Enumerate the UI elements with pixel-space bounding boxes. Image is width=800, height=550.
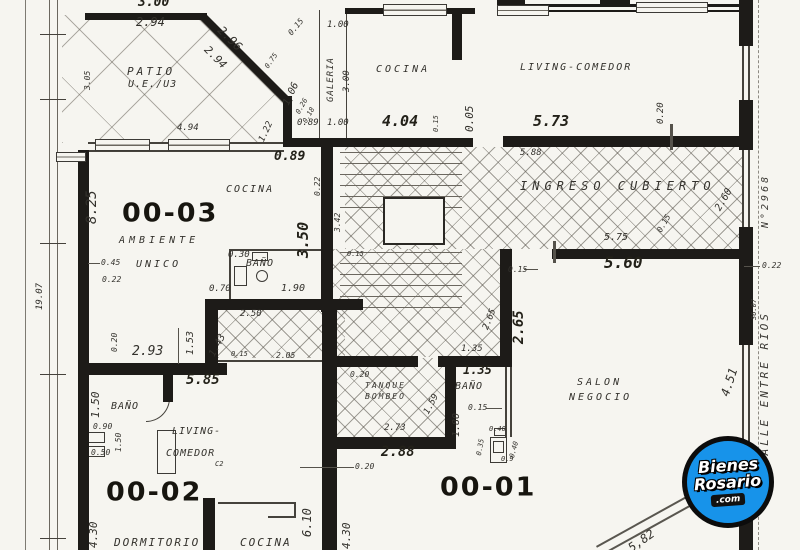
stair-tread bbox=[340, 163, 462, 164]
stair-tread bbox=[340, 263, 462, 264]
stair-tread bbox=[340, 296, 462, 297]
dimension-label: 0.15 bbox=[287, 17, 306, 37]
dimension-label: 5.73 bbox=[533, 114, 569, 129]
wall-segment bbox=[503, 136, 745, 147]
dimension-label: 3.50 bbox=[296, 222, 311, 258]
survey-tick bbox=[40, 243, 66, 244]
dimension-label: 0.30 bbox=[228, 251, 250, 260]
sink-fixture bbox=[88, 432, 105, 443]
window-line bbox=[748, 150, 750, 227]
dim-leader bbox=[744, 266, 760, 267]
boundary-line bbox=[25, 0, 26, 550]
dimension-label: 6.10 bbox=[301, 508, 313, 537]
hall-edge-line bbox=[218, 360, 330, 362]
unit-label-00-02: 00-02 bbox=[106, 478, 202, 507]
survey-tick bbox=[40, 34, 66, 35]
window-symbol bbox=[497, 5, 549, 16]
dimension-label: 1.90 bbox=[281, 284, 305, 294]
unit-label-00-03: 00-03 bbox=[122, 199, 218, 228]
property-line bbox=[57, 0, 58, 550]
dimension-label: 0.20 bbox=[355, 463, 374, 471]
dimension-label: 1.00 bbox=[327, 119, 349, 128]
room-label-patio: PATIO bbox=[127, 66, 175, 77]
dimension-label: 19.07 bbox=[36, 283, 45, 310]
scan-artifact bbox=[600, 0, 630, 6]
window-symbol bbox=[95, 139, 150, 151]
dim-tick bbox=[670, 124, 673, 150]
window-symbol bbox=[383, 4, 447, 16]
dimension-label: 2.73 bbox=[384, 424, 406, 433]
dimension-label: 0.20 bbox=[350, 371, 369, 379]
stair-tread bbox=[340, 274, 462, 275]
stair-tread bbox=[340, 174, 462, 175]
window-symbol bbox=[168, 139, 230, 151]
closet-label: C2 bbox=[215, 461, 223, 468]
room-label-galeria: GALERIA bbox=[327, 57, 336, 102]
room-label-negocio: NEGOCIO bbox=[569, 393, 632, 403]
room-label-banio-u3: BAÑO bbox=[246, 259, 274, 269]
wall-segment bbox=[552, 249, 743, 259]
wall-segment bbox=[739, 0, 753, 46]
dimension-label: 1.35 bbox=[463, 364, 492, 376]
dimension-label: 2.93 bbox=[132, 345, 163, 358]
dimension-label: 0.40 bbox=[489, 426, 506, 433]
room-label-dormitorio: DORMITORIO bbox=[114, 537, 200, 548]
room-label-cocina-u3: COCINA bbox=[226, 185, 274, 195]
unit-label-00-01: 00-01 bbox=[440, 473, 536, 502]
property-line bbox=[49, 0, 50, 550]
dimension-label: 5.88 bbox=[520, 149, 542, 158]
dimension-label: 4.04 bbox=[382, 114, 418, 129]
dimension-label: 0.90 bbox=[93, 423, 112, 431]
wall-segment bbox=[203, 498, 215, 550]
wall-segment bbox=[205, 299, 363, 310]
dimension-label: 0.45 bbox=[101, 259, 120, 267]
dimension-label: 0.50 bbox=[91, 449, 110, 457]
room-label-banio-u1: BAÑO bbox=[455, 382, 483, 392]
dimension-label: 0.20 bbox=[657, 102, 666, 124]
street-name-label: CALLE ENTRE RIOS bbox=[758, 280, 771, 465]
window-line bbox=[742, 46, 744, 104]
dimension-label: 0.20 bbox=[111, 333, 119, 352]
dim-leader bbox=[486, 408, 502, 409]
room-label-cocina-top: COCINA bbox=[376, 65, 430, 75]
dimension-label: 4.30 bbox=[88, 522, 99, 549]
wall-segment bbox=[337, 356, 418, 367]
logo-line2: Rosario bbox=[694, 472, 762, 493]
room-label-bombeo: BOMBEO bbox=[365, 393, 406, 401]
dimension-label: 5,82 bbox=[626, 527, 657, 550]
wall-segment bbox=[739, 227, 753, 345]
room-label-comedor-u2: COMEDOR bbox=[166, 449, 215, 459]
dimension-label: 0.22 bbox=[314, 177, 322, 196]
dimension-label: 0.70 bbox=[209, 285, 231, 294]
dimension-label: 3.00 bbox=[138, 0, 169, 9]
dim-line bbox=[178, 328, 179, 364]
room-label-tanque: TANQUE bbox=[365, 382, 406, 390]
stair-tread bbox=[340, 185, 462, 186]
room-label-ingreso: INGRESO CUBIERTO bbox=[520, 180, 716, 192]
kitchen-counter bbox=[218, 502, 296, 504]
galeria-line bbox=[319, 10, 320, 140]
dimension-label: 0.15 bbox=[347, 251, 364, 258]
dimension-label: 8.25 bbox=[85, 190, 99, 224]
survey-tick bbox=[40, 99, 66, 100]
dimension-label: 0.89 bbox=[297, 119, 319, 128]
bienesrosario-logo: Bienes Rosario .com bbox=[682, 436, 774, 528]
dimension-label: 2.94 bbox=[136, 16, 165, 28]
wall-segment bbox=[452, 14, 462, 60]
stair-landing bbox=[383, 197, 445, 245]
dimension-label: 0.22 bbox=[102, 276, 121, 284]
wall-segment bbox=[322, 310, 337, 550]
wall-segment bbox=[321, 147, 333, 312]
logo-domain-badge: .com bbox=[710, 493, 745, 507]
wall-segment bbox=[163, 375, 173, 402]
dimension-label: 0.15 bbox=[231, 351, 248, 358]
dimension-label: 36.07 bbox=[751, 299, 758, 320]
dimension-label: 0.15 bbox=[508, 266, 527, 274]
room-label-salon: SALON bbox=[577, 378, 622, 388]
wall-segment bbox=[739, 100, 753, 150]
stair-tread bbox=[340, 285, 462, 286]
room-label-ambiente: AMBIENTE bbox=[119, 236, 199, 246]
window-symbol bbox=[56, 152, 86, 162]
dimension-label: 0.05 bbox=[464, 106, 475, 133]
dimension-label: 0.15 bbox=[468, 404, 487, 412]
dimension-label: 0.15 bbox=[433, 115, 440, 132]
dimension-label: 5.85 bbox=[186, 373, 220, 387]
room-label-unico: UNICO bbox=[136, 260, 181, 270]
dimension-label: 3.05 bbox=[84, 71, 92, 90]
window-line bbox=[748, 46, 750, 104]
room-label-living-u2: LIVING- bbox=[172, 427, 221, 437]
window-line bbox=[742, 150, 744, 227]
dimension-label: 2.88 bbox=[381, 445, 415, 459]
dimension-label: 1.50 bbox=[90, 392, 101, 419]
banio-u1-wall-line bbox=[510, 367, 512, 437]
room-label-living-top: LIVING-COMEDOR bbox=[520, 63, 632, 73]
dimension-label: 2.65 bbox=[512, 310, 526, 344]
dimension-label: 4.51 bbox=[719, 367, 739, 398]
dim-tick bbox=[553, 241, 556, 263]
dimension-label: 3.00 bbox=[343, 70, 352, 92]
kitchen-counter bbox=[268, 516, 296, 518]
toilet-fixture bbox=[234, 266, 247, 286]
dimension-label: 1.53 bbox=[186, 331, 196, 355]
dimension-label: 1.50 bbox=[115, 433, 123, 452]
dimension-label: 1.35 bbox=[461, 345, 483, 354]
survey-tick bbox=[40, 538, 66, 539]
sink-fixture bbox=[256, 270, 268, 282]
dimension-label: 0.35 bbox=[476, 438, 486, 456]
wall-segment bbox=[283, 138, 473, 147]
dimension-label: 1.80 bbox=[452, 413, 462, 437]
dimension-label: 0.89 bbox=[274, 150, 305, 163]
window-symbol bbox=[636, 2, 708, 13]
room-label-banio-u2: BAÑO bbox=[111, 402, 139, 412]
dimension-label: 5.75 bbox=[604, 233, 628, 243]
dimension-label: 0.9 bbox=[501, 456, 514, 463]
dimension-label: 5.60 bbox=[604, 255, 643, 271]
street-number-label: N°2968 bbox=[760, 150, 771, 228]
dimension-label: 4.30 bbox=[341, 523, 352, 550]
floor-plan-canvas: PATIO U.E./U3 GALERIA COCINA LIVING-COME… bbox=[0, 0, 800, 550]
room-label-patio-sub: U.E./U3 bbox=[128, 80, 177, 90]
dimension-label: 3.42 bbox=[334, 213, 342, 232]
dimension-label: 0.22 bbox=[762, 262, 781, 270]
dimension-label: 2.50 bbox=[240, 310, 262, 319]
dim-leader bbox=[300, 467, 354, 468]
stair-tread bbox=[340, 152, 462, 153]
toilet-fixture bbox=[493, 441, 504, 453]
room-label-cocina-u2: COCINA bbox=[240, 537, 292, 548]
dimension-label: 1.00 bbox=[327, 21, 349, 30]
dimension-label: 2.05 bbox=[276, 352, 295, 360]
dimension-label: 4.94 bbox=[177, 124, 199, 133]
dimension-label: 0.75 bbox=[264, 52, 279, 70]
dim-leader bbox=[88, 263, 100, 264]
survey-tick bbox=[40, 374, 66, 375]
